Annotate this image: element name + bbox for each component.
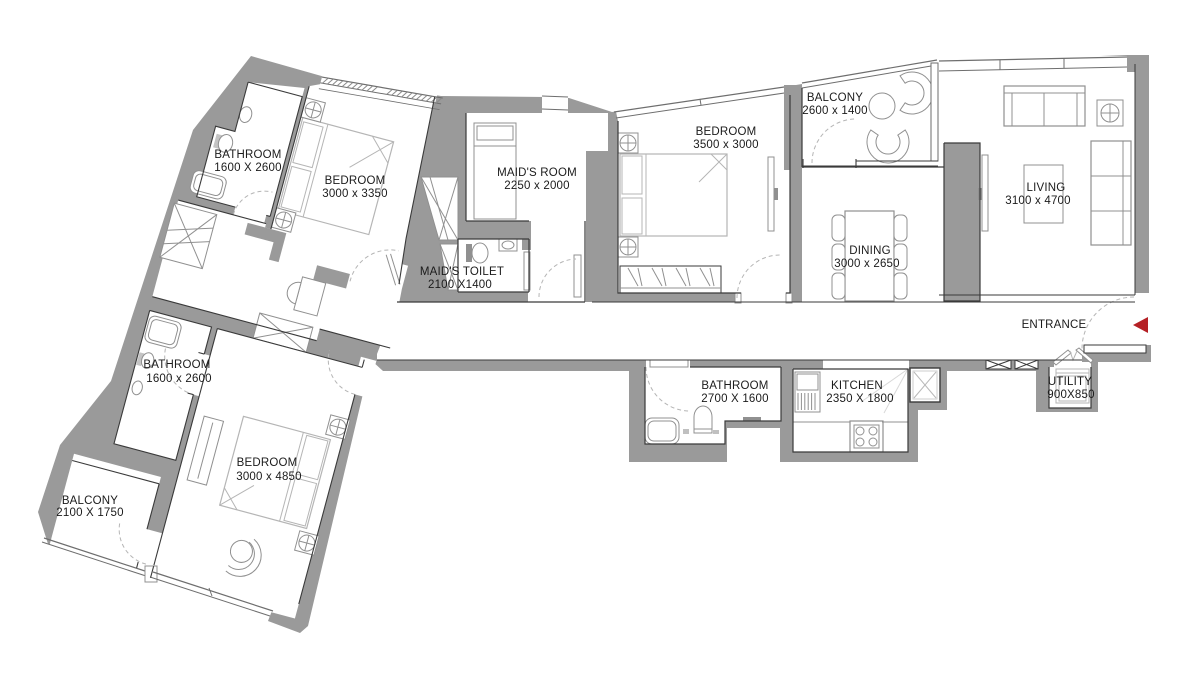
svg-text:BEDROOM: BEDROOM — [325, 175, 386, 187]
svg-text:2100 X 1750: 2100 X 1750 — [56, 507, 123, 519]
svg-text:ENTRANCE: ENTRANCE — [1022, 319, 1087, 331]
svg-text:3000 x 4850: 3000 x 4850 — [236, 471, 302, 483]
svg-text:BATHROOM: BATHROOM — [143, 359, 210, 371]
svg-text:BATHROOM: BATHROOM — [214, 149, 281, 161]
svg-text:2700 X 1600: 2700 X 1600 — [701, 393, 768, 405]
svg-text:3000 x 2650: 3000 x 2650 — [834, 258, 900, 270]
svg-text:900X850: 900X850 — [1047, 389, 1094, 401]
svg-text:BALCONY: BALCONY — [807, 92, 863, 104]
svg-text:LIVING: LIVING — [1027, 182, 1066, 194]
svg-text:2350 X 1800: 2350 X 1800 — [826, 393, 893, 405]
svg-text:MAID'S TOILET: MAID'S TOILET — [420, 266, 504, 278]
svg-text:MAID'S ROOM: MAID'S ROOM — [497, 167, 577, 179]
svg-text:2250 x 2000: 2250 x 2000 — [504, 180, 570, 192]
svg-text:2100 X1400: 2100 X1400 — [428, 279, 492, 291]
svg-text:BATHROOM: BATHROOM — [701, 380, 768, 392]
svg-text:UTILITY: UTILITY — [1048, 376, 1092, 388]
svg-text:BALCONY: BALCONY — [62, 495, 118, 507]
svg-text:BEDROOM: BEDROOM — [696, 126, 757, 138]
svg-text:1600 x 2600: 1600 x 2600 — [146, 373, 212, 385]
svg-text:3000 x 3350: 3000 x 3350 — [322, 188, 388, 200]
svg-text:2600 x 1400: 2600 x 1400 — [802, 105, 868, 117]
svg-text:BEDROOM: BEDROOM — [237, 457, 298, 469]
svg-text:KITCHEN: KITCHEN — [831, 380, 883, 392]
svg-text:3500 x 3000: 3500 x 3000 — [693, 139, 759, 151]
svg-text:DINING: DINING — [849, 245, 890, 257]
svg-text:1600 X 2600: 1600 X 2600 — [214, 162, 281, 174]
svg-text:3100 x 4700: 3100 x 4700 — [1005, 195, 1071, 207]
